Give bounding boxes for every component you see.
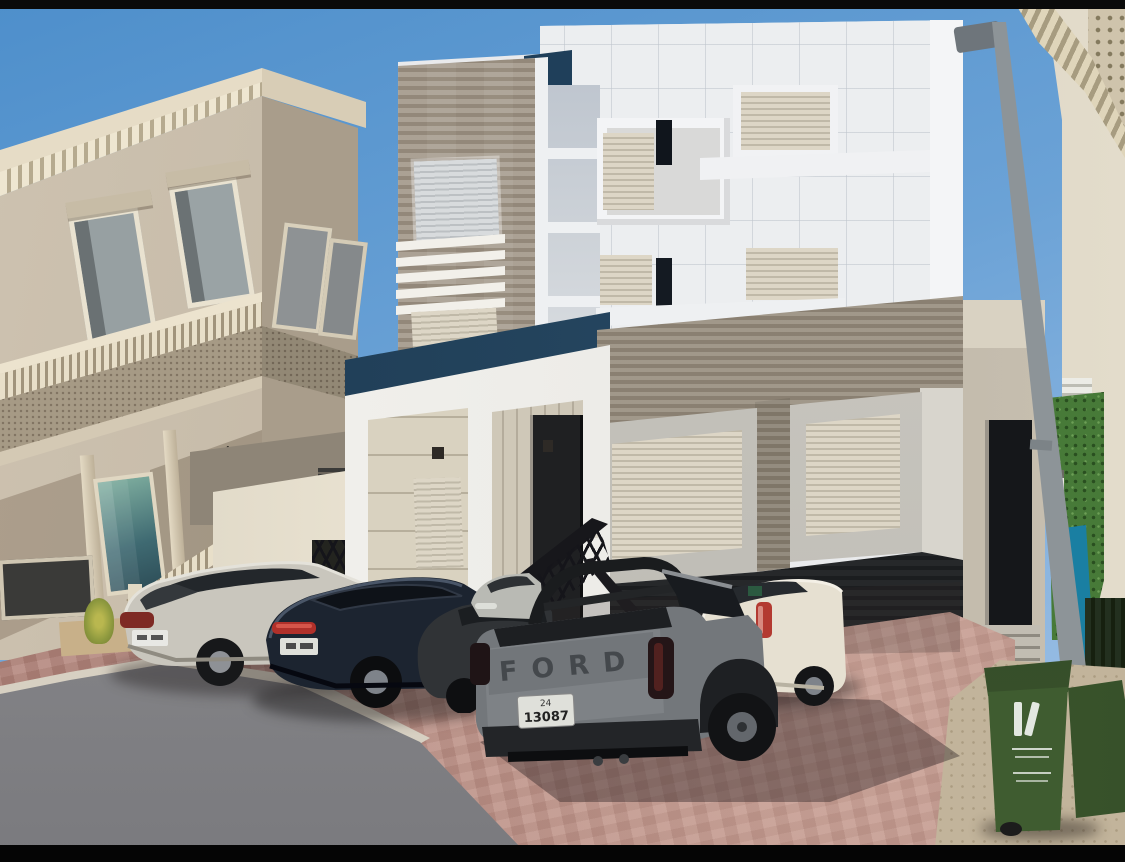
license-plate-line1: 24 <box>540 699 552 710</box>
truck-gray-pickup: FORD 24 13087 <box>448 545 783 770</box>
bin-wheel <box>1000 822 1022 836</box>
alley-door <box>985 420 1032 625</box>
wall-lamp-b <box>543 440 553 452</box>
bin-text-line-4 <box>1016 780 1048 782</box>
bin-text-line-1 <box>1012 748 1052 750</box>
basement-window <box>0 556 96 621</box>
municipality-logo <box>1014 702 1022 736</box>
recessed-glass-bay <box>548 85 600 330</box>
tower-shutter-window <box>414 159 500 242</box>
wall-lamp-a <box>432 447 444 459</box>
bay-ledge-2 <box>548 222 600 233</box>
slit-window-upper <box>656 120 672 165</box>
facade-right-pilaster <box>930 20 963 340</box>
bay-ledge-1 <box>548 148 600 159</box>
bin-text-line-3 <box>1013 772 1051 774</box>
second-floor-shutter-1 <box>600 255 652 305</box>
letterbox-bottom <box>0 845 1125 862</box>
upper-right-roller-shutter <box>741 92 830 150</box>
bin-text-line-2 <box>1015 756 1049 758</box>
slit-window-lower <box>656 258 672 308</box>
street-photo: FORD 24 13087 <box>0 0 1125 862</box>
lamp-post-collar <box>1030 439 1053 451</box>
second-floor-shutter-2 <box>746 248 838 300</box>
feature-roller-shutter <box>603 133 654 210</box>
license-plate-line2: 13087 <box>523 709 569 726</box>
letterbox-top <box>0 0 1125 9</box>
bay-ledge-3 <box>548 296 600 307</box>
